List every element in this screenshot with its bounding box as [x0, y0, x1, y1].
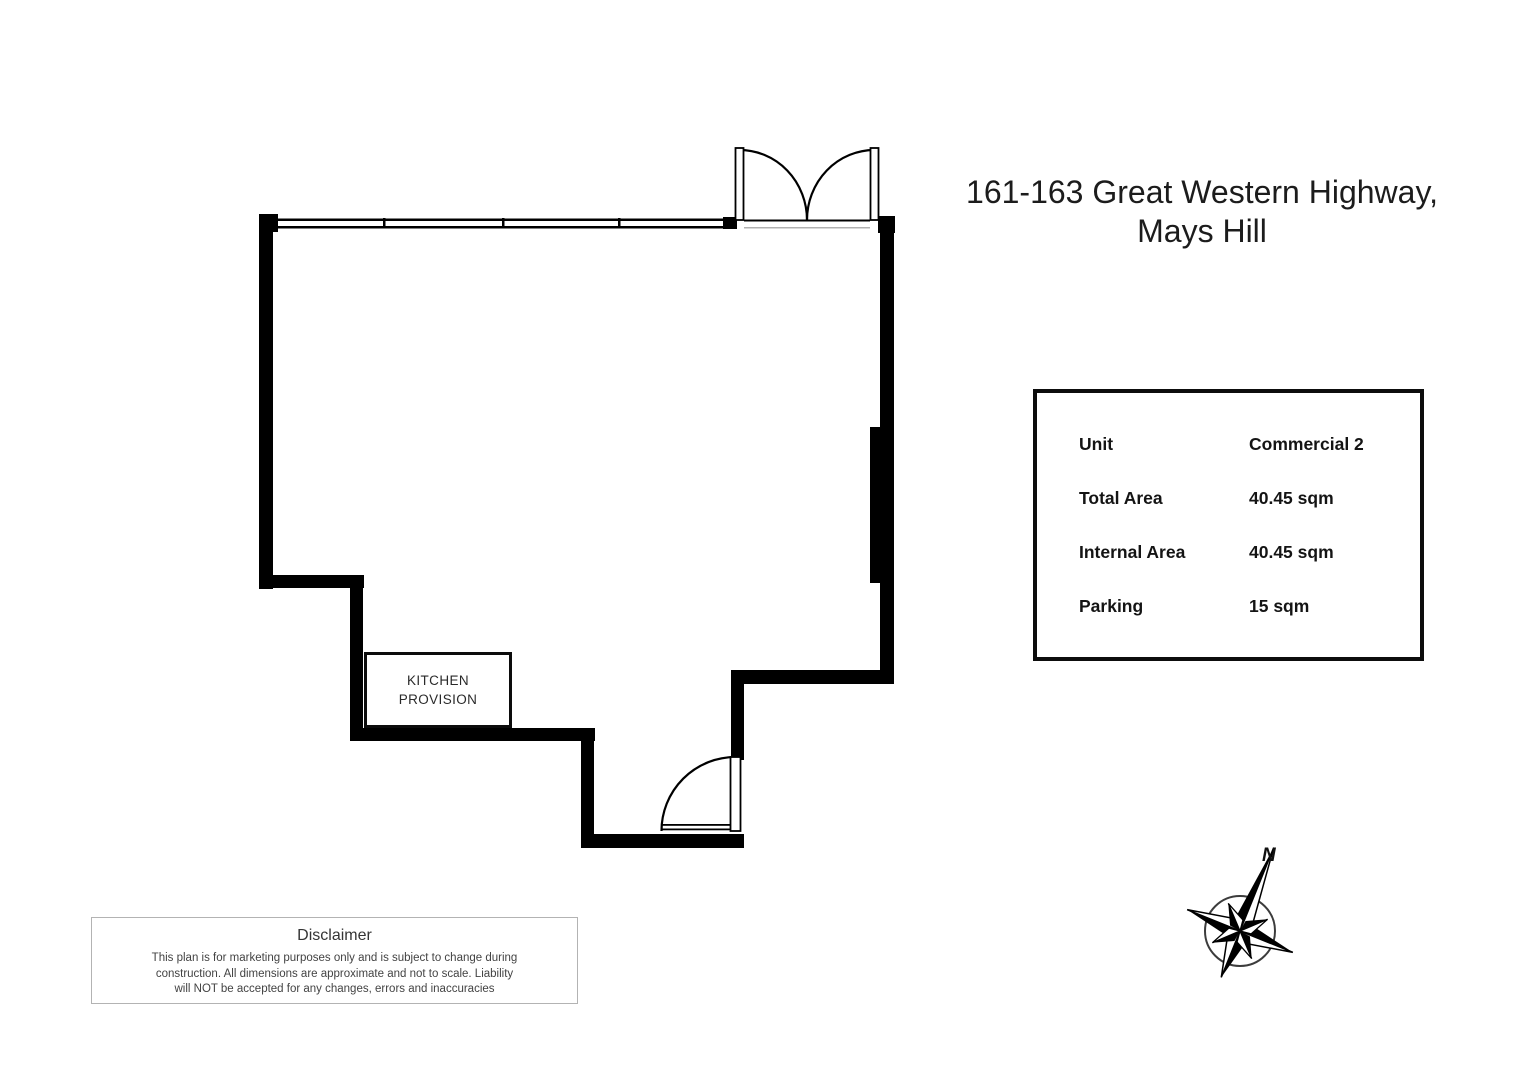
wall-bottom-right — [731, 670, 894, 684]
wall-step-vertical — [350, 575, 363, 741]
wall-corner-top-left — [259, 214, 278, 232]
info-value: 40.45 sqm — [1249, 542, 1420, 563]
info-row-parking: Parking 15 sqm — [1037, 579, 1420, 633]
page-title-line2: Mays Hill — [942, 212, 1462, 251]
wall-vestibule-bottom — [581, 834, 744, 848]
wall-right — [880, 217, 894, 684]
door-threshold — [661, 829, 731, 831]
wall-vestibule-left — [581, 728, 594, 848]
wall-kitchen-bottom — [350, 728, 595, 741]
info-value: Commercial 2 — [1249, 434, 1420, 455]
info-label: Internal Area — [1079, 542, 1249, 563]
door-swing-arc-left — [740, 150, 808, 220]
info-row-total-area: Total Area 40.45 sqm — [1037, 471, 1420, 525]
page-title-line1: 161-163 Great Western Highway, — [942, 173, 1462, 212]
kitchen-provision-label-line2: PROVISION — [399, 690, 478, 709]
compass-north-label: N — [1262, 845, 1277, 866]
info-row-unit: Unit Commercial 2 — [1037, 417, 1420, 471]
page-title: 161-163 Great Western Highway, Mays Hill — [942, 173, 1462, 251]
kitchen-provision-label-line1: KITCHEN — [407, 671, 469, 690]
info-row-internal-area: Internal Area 40.45 sqm — [1037, 525, 1420, 579]
kitchen-provision-box: KITCHEN PROVISION — [364, 652, 512, 728]
window-mullion — [502, 218, 505, 228]
floor-plan-page: N 161-163 Great Western Highway, Mays Hi… — [0, 0, 1534, 1083]
disclaimer-line: This plan is for marketing purposes only… — [92, 951, 577, 967]
window-wall — [262, 218, 737, 229]
single-door — [661, 757, 741, 831]
door-threshold-floor-line — [744, 227, 870, 229]
door-swing-arc-right — [807, 150, 875, 220]
double-entry-door — [736, 148, 879, 229]
info-value: 40.45 sqm — [1249, 488, 1420, 509]
door-leaf — [731, 757, 741, 831]
unit-info-box: Unit Commercial 2 Total Area 40.45 sqm I… — [1033, 389, 1424, 661]
disclaimer-line: will NOT be accepted for any changes, er… — [92, 982, 577, 998]
info-label: Unit — [1079, 434, 1249, 455]
window-mullion — [383, 218, 386, 228]
disclaimer-line: construction. All dimensions are approxi… — [92, 967, 577, 983]
door-swing-arc — [662, 757, 736, 831]
wall-right-pilaster — [870, 427, 882, 583]
info-value: 15 sqm — [1249, 596, 1420, 617]
door-leaf-left — [736, 148, 744, 220]
wall-step-horizontal — [259, 575, 364, 588]
compass-rose: N — [1168, 826, 1326, 999]
info-label: Parking — [1079, 596, 1249, 617]
info-label: Total Area — [1079, 488, 1249, 509]
wall-corner-top-right — [878, 216, 895, 233]
wall-left — [259, 215, 273, 589]
disclaimer-title: Disclaimer — [92, 927, 577, 945]
disclaimer-body: This plan is for marketing purposes only… — [92, 951, 577, 998]
door-leaf-right — [871, 148, 879, 220]
walls — [259, 214, 895, 848]
disclaimer-box: Disclaimer This plan is for marketing pu… — [91, 917, 578, 1004]
door-threshold — [661, 824, 731, 826]
window-mullion — [618, 218, 621, 228]
